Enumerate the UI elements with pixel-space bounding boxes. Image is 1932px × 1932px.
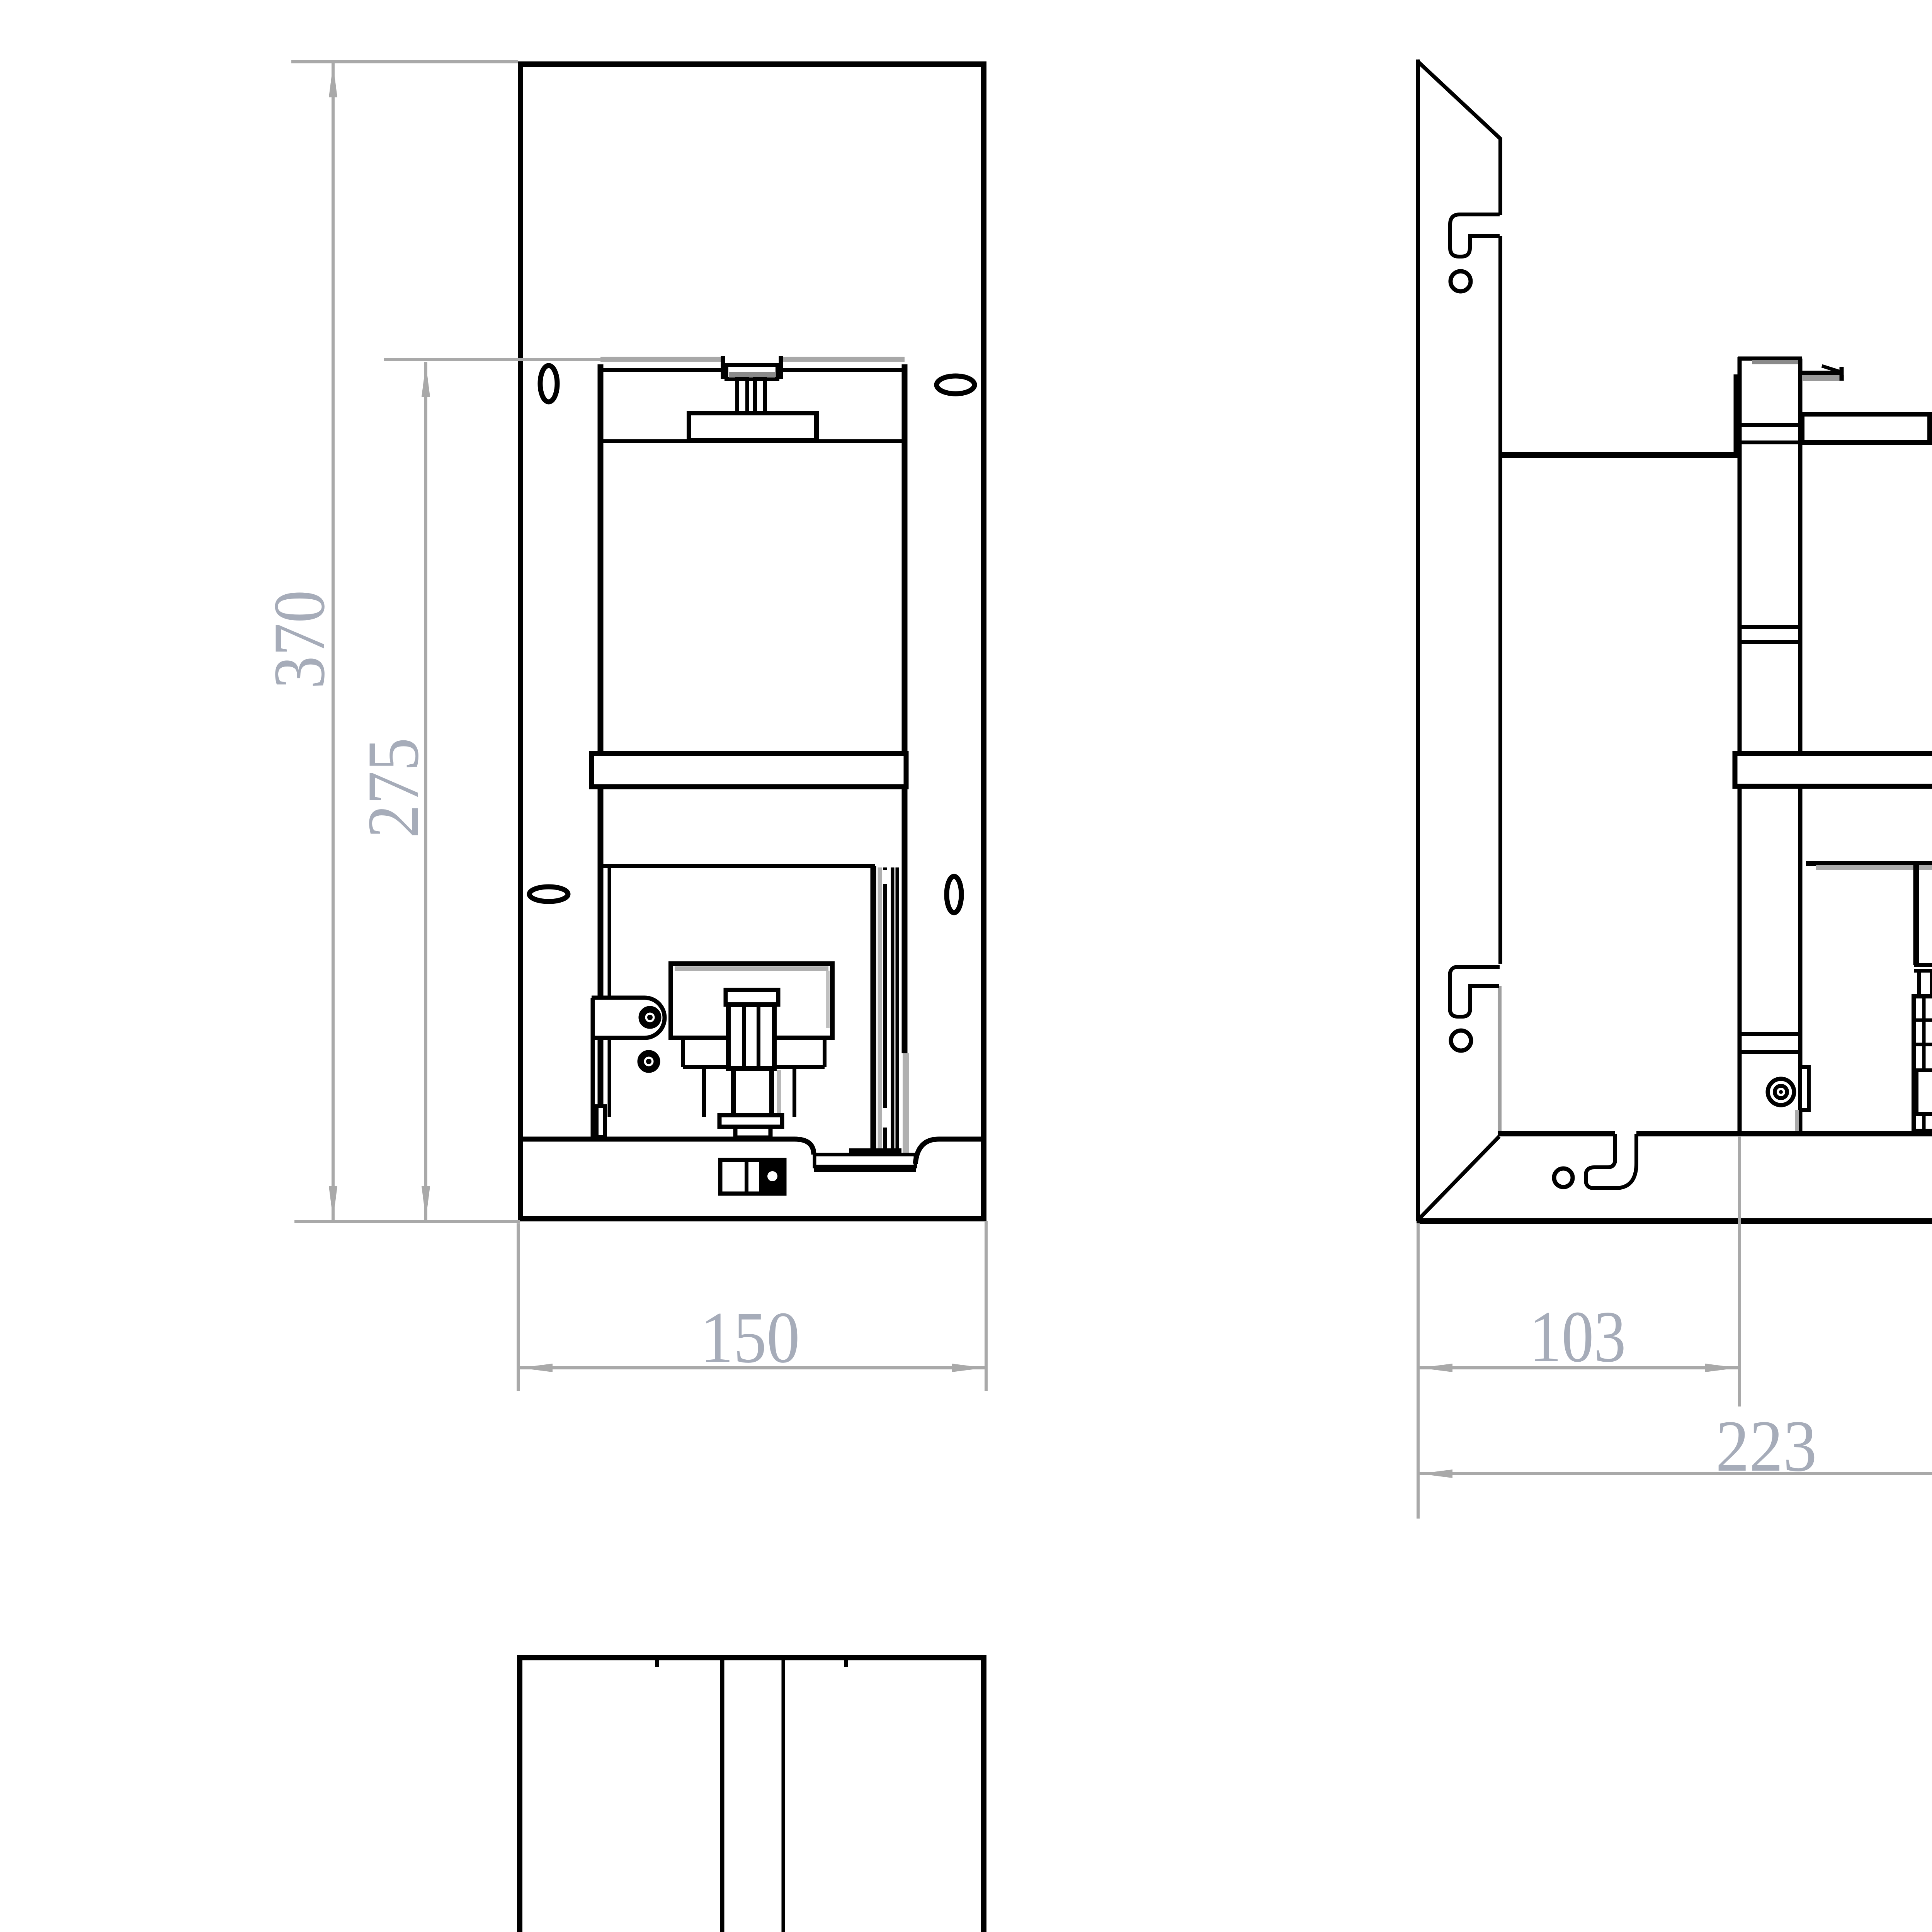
svg-text:370: 370	[259, 590, 340, 689]
svg-text:275: 275	[353, 738, 434, 838]
svg-text:150: 150	[700, 1297, 800, 1378]
svg-text:103: 103	[1529, 1296, 1626, 1378]
svg-text:223: 223	[1716, 1406, 1817, 1487]
